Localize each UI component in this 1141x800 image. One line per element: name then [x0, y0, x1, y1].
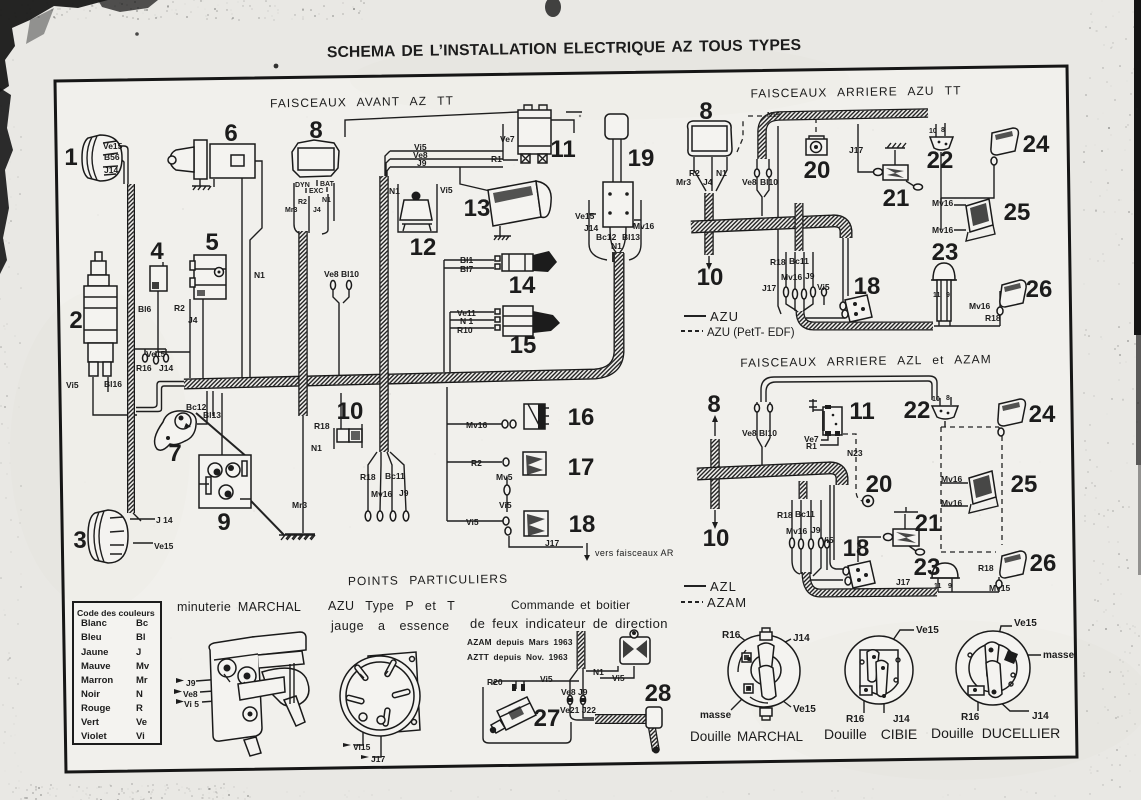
svg-text:28: 28 [645, 680, 672, 707]
svg-text:N1: N1 [311, 443, 322, 453]
svg-text:Vi5: Vi5 [499, 500, 512, 510]
svg-text:BAT: BAT [320, 181, 335, 188]
svg-text:Mr3: Mr3 [676, 177, 691, 187]
svg-text:R16: R16 [722, 630, 741, 641]
svg-text:Vi5: Vi5 [466, 517, 479, 527]
svg-text:Violet: Violet [81, 731, 108, 742]
svg-text:R18: R18 [777, 510, 793, 520]
svg-text:8: 8 [941, 127, 945, 134]
svg-text:20: 20 [804, 157, 831, 184]
svg-text:Vi5: Vi5 [817, 282, 830, 292]
svg-text:masse: masse [1043, 650, 1075, 661]
svg-text:Ve15: Ve15 [146, 349, 166, 359]
svg-text:8: 8 [946, 395, 950, 402]
svg-text:Bl13: Bl13 [622, 232, 640, 242]
svg-text:14: 14 [509, 272, 536, 299]
svg-text:Vi5: Vi5 [66, 380, 79, 390]
svg-text:Mv5: Mv5 [496, 472, 513, 482]
svg-text:R18: R18 [360, 472, 376, 482]
svg-text:8: 8 [309, 117, 322, 144]
svg-text:11: 11 [934, 583, 942, 590]
svg-text:Bc11: Bc11 [795, 509, 815, 519]
svg-text:AZAM depuis Mars 1963: AZAM depuis Mars 1963 [467, 637, 573, 647]
svg-text:Bl10: Bl10 [759, 428, 777, 438]
svg-text:AZU (PetT- EDF): AZU (PetT- EDF) [707, 327, 795, 339]
svg-text:1: 1 [64, 144, 77, 171]
svg-text:EXC: EXC [309, 188, 323, 195]
svg-text:Ve15: Ve15 [154, 541, 174, 551]
svg-text:Vert: Vert [81, 717, 100, 728]
svg-text:R18: R18 [314, 421, 330, 431]
svg-text:Mv16: Mv16 [932, 198, 954, 208]
svg-text:18: 18 [843, 535, 870, 562]
svg-text:19: 19 [628, 145, 655, 172]
svg-text:R16: R16 [846, 714, 865, 725]
svg-text:15: 15 [510, 332, 537, 359]
svg-text:Vi5: Vi5 [440, 185, 453, 195]
svg-text:Mv16: Mv16 [466, 420, 488, 430]
svg-text:J9: J9 [417, 158, 427, 168]
svg-text:Bl16: Bl16 [104, 379, 122, 389]
svg-text:J4: J4 [313, 207, 321, 214]
svg-text:J17: J17 [545, 538, 559, 548]
svg-text:AZL: AZL [710, 579, 737, 594]
svg-text:Mv16: Mv16 [932, 225, 954, 235]
svg-text:Mr: Mr [136, 675, 148, 686]
svg-text:jauge a essence: jauge a essence [330, 619, 450, 633]
svg-text:J9: J9 [186, 678, 196, 688]
svg-text:27: 27 [534, 705, 561, 732]
svg-text:N1: N1 [389, 186, 400, 196]
svg-text:N1: N1 [611, 241, 622, 251]
svg-text:25: 25 [1011, 471, 1038, 498]
svg-text:R2: R2 [471, 458, 482, 468]
svg-text:Bl10: Bl10 [760, 177, 778, 187]
svg-text:N1: N1 [254, 270, 265, 280]
svg-text:N1: N1 [716, 168, 727, 178]
svg-text:Ve21 J22: Ve21 J22 [560, 705, 596, 715]
svg-text:Ve15: Ve15 [793, 704, 816, 715]
svg-text:Ve15: Ve15 [916, 625, 939, 636]
svg-text:Mv16: Mv16 [941, 498, 963, 508]
svg-text:11: 11 [849, 398, 874, 425]
svg-text:R16: R16 [136, 363, 152, 373]
svg-text:2: 2 [69, 307, 82, 334]
svg-text:Code des couleurs: Code des couleurs [77, 608, 155, 618]
svg-text:J17: J17 [896, 577, 910, 587]
svg-text:N1: N1 [322, 197, 331, 204]
svg-text:21: 21 [883, 185, 910, 212]
svg-text:Mr3: Mr3 [292, 500, 307, 510]
svg-text:R18: R18 [978, 563, 994, 573]
svg-text:9: 9 [948, 583, 952, 590]
svg-text:10: 10 [337, 398, 364, 425]
svg-text:Vi5: Vi5 [540, 674, 553, 684]
svg-text:Ve8: Ve8 [742, 177, 757, 187]
svg-text:Mr3: Mr3 [285, 207, 298, 214]
svg-text:24: 24 [1023, 131, 1050, 158]
svg-text:POINTS PARTICULIERS: POINTS PARTICULIERS [348, 572, 508, 589]
svg-text:9: 9 [946, 292, 950, 299]
svg-text:J4: J4 [188, 315, 198, 325]
svg-text:4: 4 [150, 238, 164, 265]
svg-text:J9: J9 [805, 271, 815, 281]
svg-text:J 14: J 14 [156, 515, 173, 525]
svg-text:Bl6: Bl6 [138, 304, 152, 314]
svg-text:Ve7: Ve7 [500, 134, 515, 144]
svg-text:Ve15: Ve15 [103, 141, 123, 151]
svg-text:Mv16: Mv16 [781, 272, 803, 282]
svg-text:Mv16: Mv16 [786, 526, 808, 536]
svg-text:12: 12 [410, 234, 437, 261]
svg-text:Ve8: Ve8 [183, 689, 198, 699]
svg-text:J17: J17 [762, 283, 776, 293]
svg-text:Douille CIBIE: Douille CIBIE [824, 726, 917, 742]
svg-text:Noir: Noir [81, 689, 100, 700]
svg-text:5: 5 [205, 229, 218, 256]
svg-text:AZAM: AZAM [707, 595, 747, 610]
svg-text:J9: J9 [811, 525, 821, 535]
svg-text:Douille DUCELLIER: Douille DUCELLIER [931, 725, 1060, 741]
svg-text:J9: J9 [399, 488, 409, 498]
svg-text:Rouge: Rouge [81, 703, 111, 714]
svg-text:J17: J17 [849, 145, 863, 155]
svg-text:Mv16: Mv16 [941, 474, 963, 484]
svg-text:7: 7 [168, 440, 181, 467]
svg-text:R20: R20 [487, 677, 503, 687]
svg-text:25: 25 [1004, 199, 1031, 226]
svg-text:Bl13: Bl13 [203, 410, 221, 420]
svg-text:Vi5: Vi5 [612, 673, 625, 683]
svg-text:Ve: Ve [136, 717, 147, 728]
svg-text:23: 23 [914, 554, 941, 581]
svg-text:Blanc: Blanc [81, 618, 107, 629]
svg-text:Ve8: Ve8 [742, 428, 757, 438]
svg-text:Bc11: Bc11 [789, 256, 809, 266]
svg-text:N19: N19 [767, 112, 780, 119]
svg-text:R16: R16 [961, 712, 980, 723]
svg-text:Mv16: Mv16 [633, 221, 655, 231]
svg-text:Vi 5: Vi 5 [184, 699, 199, 709]
svg-text:J14: J14 [104, 165, 118, 175]
svg-text:R: R [136, 703, 143, 714]
svg-text:Mv16: Mv16 [969, 301, 991, 311]
svg-text:20: 20 [866, 471, 893, 498]
svg-text:Mv: Mv [136, 661, 150, 672]
svg-text:Ve8: Ve8 [324, 269, 339, 279]
svg-text:R18: R18 [985, 313, 1001, 323]
svg-text:18: 18 [854, 273, 881, 300]
svg-text:J: J [136, 647, 141, 658]
svg-text:R1: R1 [806, 441, 817, 451]
svg-text:10: 10 [929, 128, 937, 135]
svg-text:R2: R2 [298, 199, 307, 206]
svg-text:Marron: Marron [81, 675, 113, 686]
svg-text:Jaune: Jaune [81, 647, 108, 658]
svg-text:Ve15: Ve15 [575, 211, 595, 221]
svg-text:26: 26 [1026, 276, 1053, 303]
svg-text:9: 9 [217, 509, 230, 536]
svg-text:minuterie MARCHAL: minuterie MARCHAL [177, 600, 301, 614]
svg-text:10: 10 [703, 525, 730, 552]
svg-text:Bleu: Bleu [81, 632, 102, 643]
svg-text:J4: J4 [703, 177, 713, 187]
svg-text:AZU Type P et T: AZU Type P et T [328, 599, 455, 613]
svg-text:Mv15: Mv15 [989, 583, 1011, 593]
svg-text:J14: J14 [793, 633, 810, 644]
svg-text:Vi5: Vi5 [821, 535, 834, 545]
svg-text:R2: R2 [174, 303, 185, 313]
svg-text:Mv16: Mv16 [371, 489, 393, 499]
svg-text:J17: J17 [371, 754, 385, 764]
svg-text:Ve8 J9: Ve8 J9 [561, 687, 588, 697]
svg-text:10: 10 [697, 264, 724, 291]
svg-text:N: N [136, 689, 143, 700]
svg-text:Bc11: Bc11 [385, 471, 405, 481]
svg-text:vers faisceaux AR: vers faisceaux AR [595, 548, 674, 558]
svg-text:Bl10: Bl10 [341, 269, 359, 279]
svg-text:R1: R1 [491, 154, 502, 164]
svg-text:3: 3 [73, 527, 86, 554]
svg-text:Douille MARCHAL: Douille MARCHAL [690, 729, 804, 744]
svg-text:de feux indicateur de directio: de feux indicateur de direction [470, 616, 668, 631]
svg-text:13: 13 [464, 195, 491, 222]
svg-text:17: 17 [568, 454, 595, 481]
svg-text:11: 11 [933, 292, 941, 299]
svg-text:Vi15: Vi15 [353, 742, 371, 752]
svg-text:Bc: Bc [136, 618, 148, 629]
svg-text:FAISCEAUX AVANT AZ TT: FAISCEAUX AVANT AZ TT [270, 94, 454, 111]
svg-text:26: 26 [1030, 550, 1057, 577]
svg-text:21: 21 [915, 510, 942, 537]
svg-text:B56: B56 [104, 152, 120, 162]
svg-text:Bl7: Bl7 [460, 264, 474, 274]
svg-text:DYN: DYN [295, 182, 310, 189]
svg-text:22: 22 [927, 147, 954, 174]
svg-text:Vi: Vi [136, 731, 145, 742]
svg-text:J14: J14 [159, 363, 173, 373]
svg-text:24: 24 [1029, 401, 1056, 428]
svg-text:16: 16 [568, 404, 595, 431]
svg-text:23: 23 [932, 239, 959, 266]
svg-text:Ve15: Ve15 [1014, 618, 1037, 629]
svg-text:22: 22 [904, 397, 931, 424]
svg-text:R18: R18 [770, 257, 786, 267]
svg-text:AZU: AZU [710, 309, 739, 324]
svg-text:8: 8 [707, 391, 720, 418]
svg-text:J14: J14 [893, 714, 910, 725]
svg-text:masse: masse [700, 710, 732, 721]
svg-text:8: 8 [699, 98, 712, 125]
svg-text:J14: J14 [1032, 711, 1049, 722]
svg-text:6: 6 [224, 120, 237, 147]
svg-text:Commande et boitier: Commande et boitier [511, 598, 630, 612]
svg-text:N23: N23 [847, 448, 863, 458]
svg-text:N1: N1 [593, 667, 604, 677]
svg-text:Mauve: Mauve [81, 661, 111, 672]
svg-text:11: 11 [550, 136, 575, 163]
svg-text:10: 10 [932, 396, 940, 403]
svg-text:Bl: Bl [136, 632, 146, 643]
svg-text:R10: R10 [457, 325, 473, 335]
svg-text:AZTT depuis Nov. 1963: AZTT depuis Nov. 1963 [467, 652, 568, 662]
svg-text:18: 18 [569, 511, 596, 538]
